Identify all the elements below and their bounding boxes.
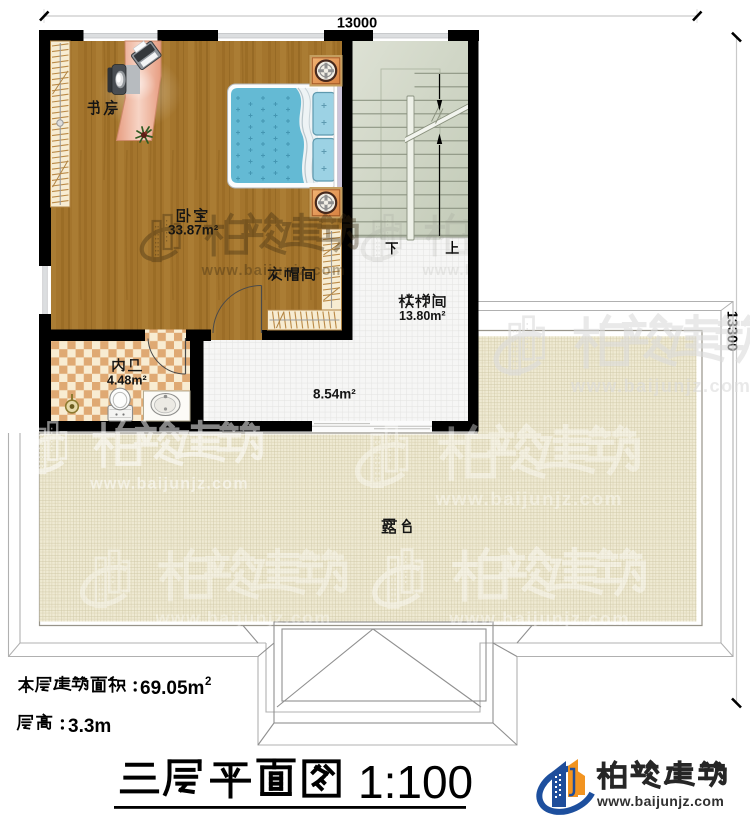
svg-text:69.05m: 69.05m — [140, 678, 204, 699]
svg-text:www.baijunjz.com: www.baijunjz.com — [201, 263, 346, 279]
svg-text:8.54m²: 8.54m² — [313, 387, 356, 402]
svg-text:2: 2 — [205, 676, 211, 688]
svg-text:www.baijunjz.com: www.baijunjz.com — [89, 475, 249, 492]
svg-text:www.baijunjz.com: www.baijunjz.com — [596, 793, 724, 809]
svg-text:13000: 13000 — [337, 16, 377, 32]
svg-text:1:100: 1:100 — [358, 756, 473, 808]
svg-text:www.baijunjz.com: www.baijunjz.com — [570, 376, 750, 396]
svg-text:www.baijunjz.com: www.baijunjz.com — [449, 609, 630, 629]
svg-text:3.3m: 3.3m — [68, 716, 111, 737]
svg-text:www.baijunjz.com: www.baijunjz.com — [435, 488, 623, 509]
svg-text:www.baijunjz.com: www.baijunjz.com — [155, 608, 332, 628]
svg-text:4.48m²: 4.48m² — [107, 374, 147, 388]
svg-text:13.80m²: 13.80m² — [399, 309, 446, 323]
